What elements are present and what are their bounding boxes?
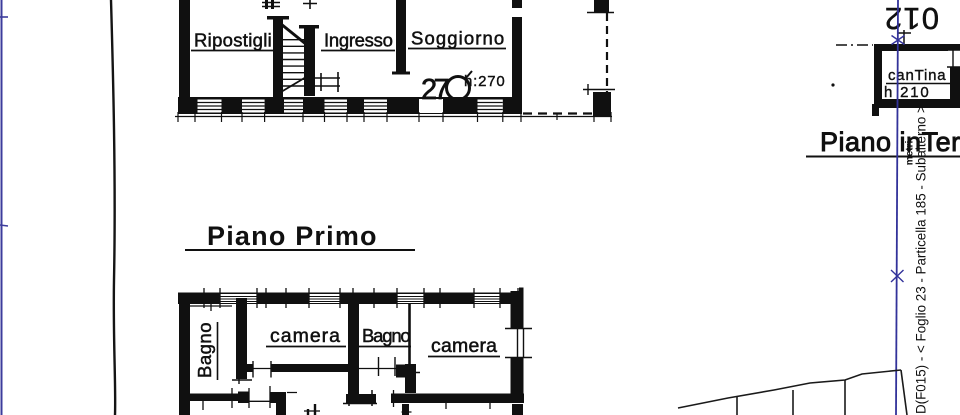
svg-text:h 210: h 210 — [884, 84, 931, 101]
svg-text:Bagno: Bagno — [362, 325, 410, 346]
svg-text:Bagno: Bagno — [194, 322, 215, 378]
svg-text:012: 012 — [884, 1, 939, 36]
svg-text:camera: camera — [270, 325, 341, 347]
svg-text:metri: metri — [905, 141, 916, 166]
svg-text:Ingresso: Ingresso — [324, 30, 393, 51]
svg-text:Piano inTerrato: Piano inTerrato — [820, 127, 960, 157]
svg-text:Piano Primo: Piano Primo — [207, 221, 378, 251]
svg-text:camera: camera — [431, 335, 497, 357]
svg-text:Soggiorno: Soggiorno — [411, 28, 505, 49]
svg-text:D(F015) - < Foglio 23 - Parti: D(F015) - < Foglio 23 - Particella 185 -… — [914, 105, 929, 414]
svg-text:h:270: h:270 — [464, 73, 506, 90]
svg-text:Ripostigli: Ripostigli — [194, 30, 272, 51]
svg-text:27: 27 — [421, 74, 449, 106]
